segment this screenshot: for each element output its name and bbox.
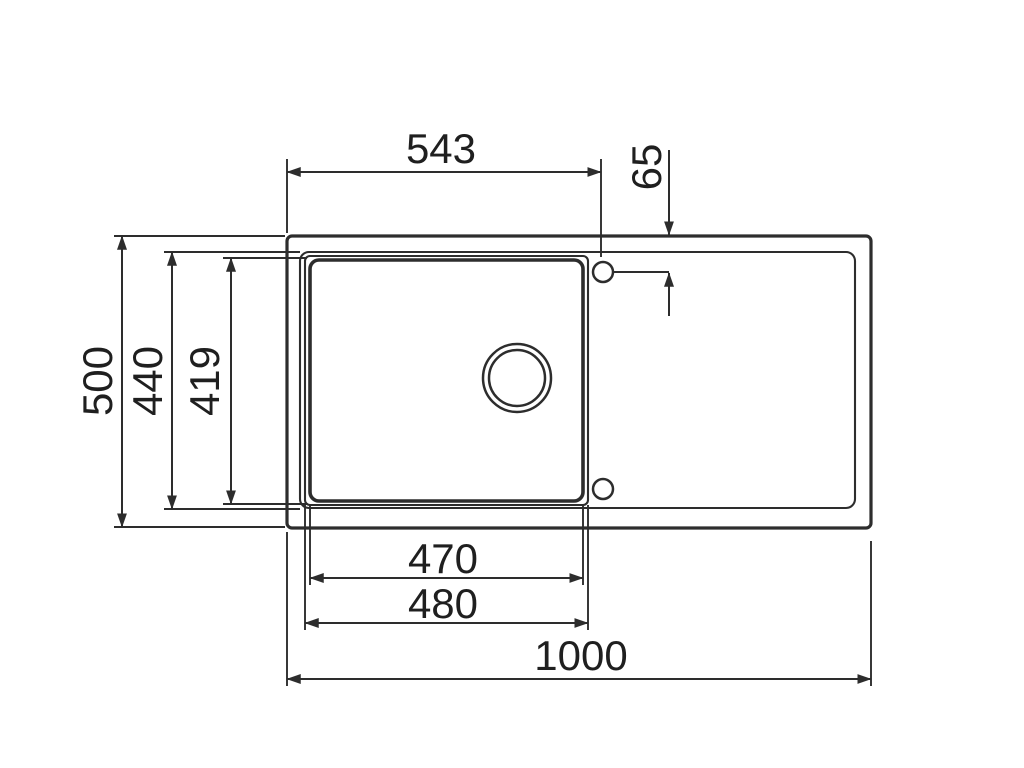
faucet-hole-top-circle <box>593 262 613 282</box>
dim-1000-label: 1000 <box>534 632 627 679</box>
dim-480-label: 480 <box>408 580 478 627</box>
drain-outer-circle <box>483 344 551 412</box>
sink-outer-outline <box>287 236 871 528</box>
dim-543-label: 543 <box>406 125 476 172</box>
drain-inner-circle <box>489 350 545 406</box>
sink-body <box>287 236 871 528</box>
dim-419-label: 419 <box>181 346 228 416</box>
dimension-65: 65 <box>613 144 670 316</box>
dimension-470: 470 <box>310 505 583 585</box>
bowl-inner-outline <box>310 260 583 501</box>
technical-drawing-canvas: 543 65 500 440 419 <box>0 0 1024 768</box>
dim-440-label: 440 <box>124 346 171 416</box>
faucet-hole-bottom-circle <box>593 479 613 499</box>
dimension-500: 500 <box>74 236 285 527</box>
dim-65-label: 65 <box>623 144 670 191</box>
dimension-1000: 1000 <box>287 532 871 686</box>
dim-470-label: 470 <box>408 535 478 582</box>
dim-500-label: 500 <box>74 346 121 416</box>
sink-rim-outline <box>300 252 855 508</box>
sink-technical-drawing: 543 65 500 440 419 <box>0 0 1024 768</box>
